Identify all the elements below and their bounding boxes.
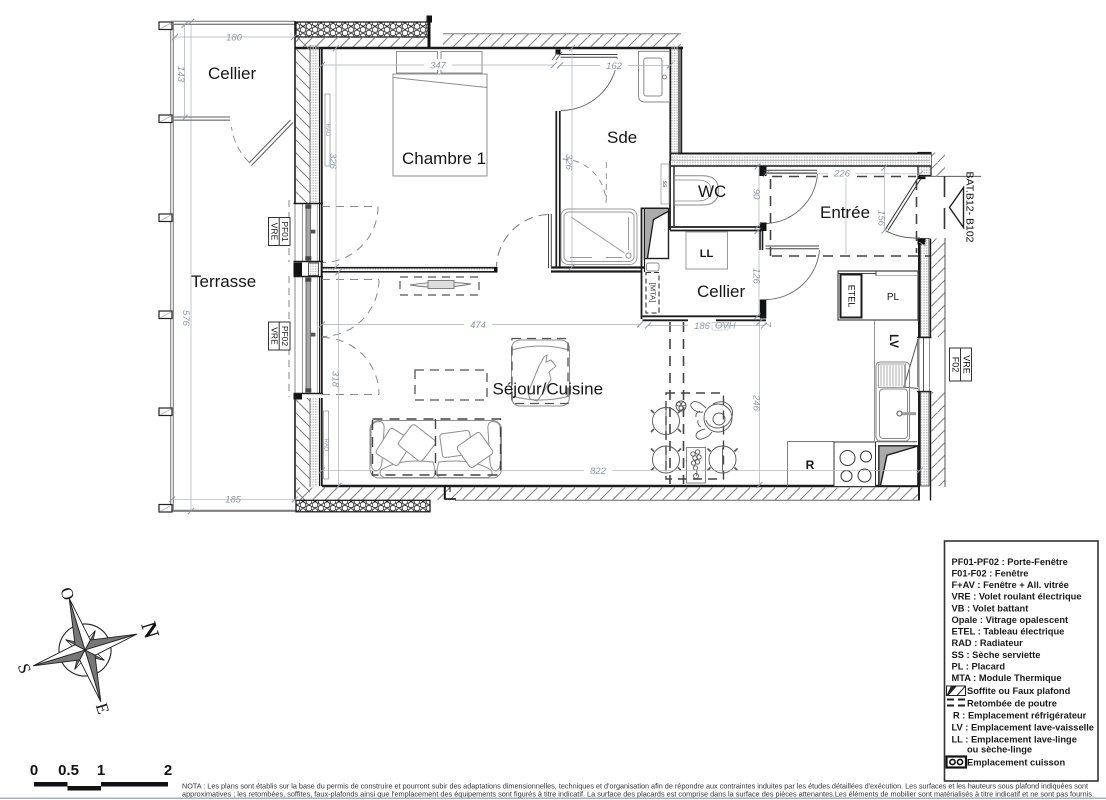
svg-text:226: 226: [833, 169, 851, 180]
svg-text:126: 126: [751, 268, 762, 285]
svg-text:Chambre 1: Chambre 1: [402, 149, 486, 168]
svg-text:VRE: VRE: [269, 327, 279, 345]
svg-text:VRE : Volet roulant électrique: VRE : Volet roulant électrique: [952, 592, 1082, 602]
svg-text:576: 576: [180, 310, 191, 327]
svg-text:ETEL: ETEL: [846, 285, 856, 308]
svg-text:Retombée de poutre: Retombée de poutre: [967, 699, 1057, 709]
svg-text:PF01: PF01: [280, 221, 290, 242]
svg-text:ou sèche-linge: ou sèche-linge: [967, 745, 1032, 755]
svg-text:[MTA]: [MTA]: [648, 283, 657, 302]
svg-text:MTA : Module Thermique: MTA : Module Thermique: [952, 673, 1062, 683]
svg-text:246: 246: [751, 394, 762, 412]
svg-text:RAD : Radiateur: RAD : Radiateur: [952, 638, 1024, 648]
svg-text:PL : Placard: PL : Placard: [952, 662, 1006, 672]
svg-text:VRE: VRE: [961, 355, 971, 374]
svg-text:LL: LL: [700, 248, 714, 260]
svg-text:LV: LV: [887, 334, 899, 348]
svg-text:ss: ss: [661, 181, 668, 188]
svg-text:90: 90: [751, 189, 762, 200]
svg-text:2: 2: [164, 762, 172, 779]
svg-text:Cellier: Cellier: [697, 282, 746, 301]
svg-text:Séjour/Cuisine: Séjour/Cuisine: [493, 380, 604, 399]
svg-text:BAT.B12- B102: BAT.B12- B102: [964, 172, 976, 243]
svg-text:R : Emplacement réfrigérateur: R : Emplacement réfrigérateur: [953, 711, 1087, 721]
svg-text:Emplacement cuisson: Emplacement cuisson: [967, 758, 1065, 768]
svg-text:162: 162: [606, 61, 623, 72]
svg-text:F01-F02 : Fenêtre: F01-F02 : Fenêtre: [952, 569, 1029, 579]
svg-text:326: 326: [327, 153, 338, 170]
svg-text:Sde: Sde: [607, 128, 637, 147]
svg-text:NOTA : Les plans sont établis: NOTA : Les plans sont établis sur la bas…: [182, 784, 1088, 791]
svg-text:Opale : Vitrage opalescent: Opale : Vitrage opalescent: [952, 615, 1069, 625]
svg-text:0.5: 0.5: [58, 762, 79, 779]
svg-text:Terrasse: Terrasse: [191, 272, 256, 291]
svg-text:180: 180: [226, 32, 243, 43]
svg-text:RAD: RAD: [324, 124, 330, 137]
svg-text:Soffite ou Faux plafond: Soffite ou Faux plafond: [967, 686, 1071, 696]
svg-text:ETEL : Tableau électrique: ETEL : Tableau électrique: [952, 627, 1065, 637]
svg-text:143: 143: [175, 66, 186, 83]
svg-text:PF02: PF02: [280, 326, 290, 347]
svg-text:156: 156: [876, 210, 887, 227]
svg-text:Entrée: Entrée: [820, 203, 870, 222]
svg-text:347: 347: [430, 61, 447, 72]
svg-text:185: 185: [225, 495, 242, 506]
svg-text:F+AV : Fenêtre + All. vitrée: F+AV : Fenêtre + All. vitrée: [952, 580, 1069, 590]
svg-text:474: 474: [470, 320, 486, 331]
svg-text:7: 7: [916, 241, 927, 247]
svg-text:1: 1: [97, 762, 105, 779]
svg-text:approximatives ; les retombées: approximatives ; les retombées, soffites…: [182, 792, 1094, 799]
svg-text:PL: PL: [887, 292, 900, 303]
svg-text:186: 186: [694, 321, 711, 332]
svg-text:0: 0: [30, 762, 38, 779]
svg-text:VB : Volet battant: VB : Volet battant: [952, 604, 1029, 614]
svg-text:R: R: [806, 458, 815, 472]
svg-text:VRE: VRE: [269, 223, 279, 241]
svg-text:LV : Emplacement lave-vaissell: LV : Emplacement lave-vaisselle: [952, 723, 1094, 733]
svg-text:Cellier: Cellier: [208, 64, 257, 83]
svg-text:LL : Emplacement lave-linge: LL : Emplacement lave-linge: [952, 735, 1077, 745]
svg-text:RAD: RAD: [322, 439, 328, 452]
svg-text:326: 326: [563, 154, 574, 171]
svg-text:SS : Sèche serviette: SS : Sèche serviette: [952, 650, 1041, 660]
svg-text:822: 822: [590, 466, 607, 477]
svg-text:F02: F02: [950, 357, 960, 373]
svg-text:WC: WC: [698, 182, 726, 201]
svg-text:318: 318: [330, 371, 341, 388]
svg-text:PF01-PF02 : Porte-Fenêtre: PF01-PF02 : Porte-Fenêtre: [952, 557, 1068, 567]
